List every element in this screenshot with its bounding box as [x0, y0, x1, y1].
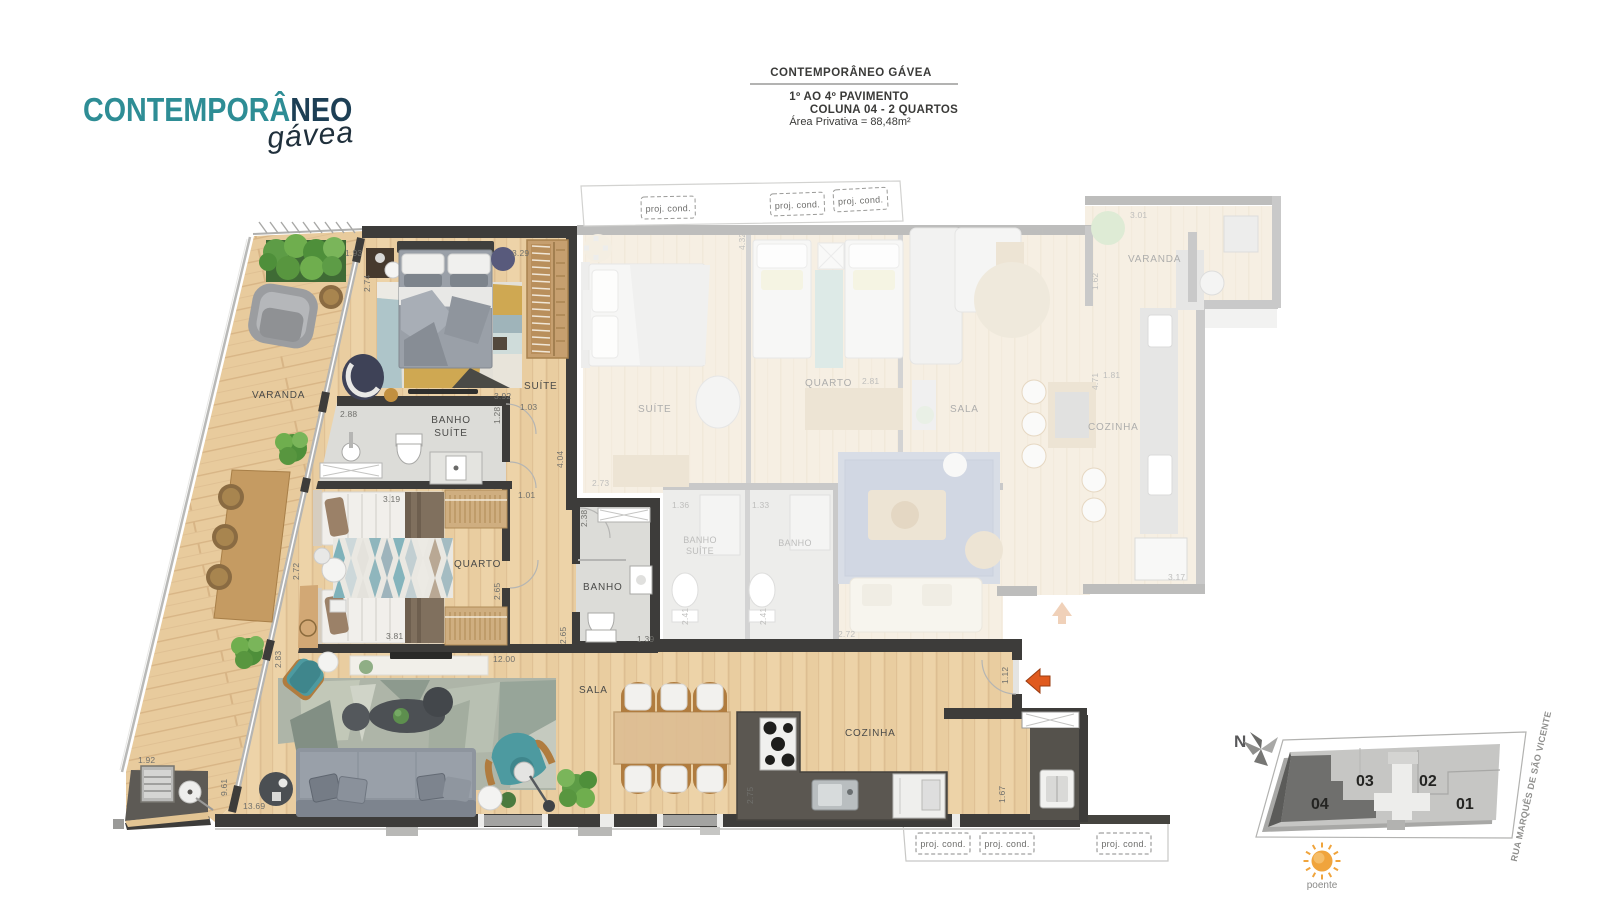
svg-text:SUÍTE: SUÍTE	[686, 546, 714, 556]
svg-text:03: 03	[1356, 773, 1374, 790]
svg-text:2.65: 2.65	[492, 583, 502, 600]
svg-text:gávea: gávea	[266, 116, 355, 155]
svg-text:4.04: 4.04	[555, 451, 565, 468]
svg-text:4.71: 4.71	[1090, 373, 1100, 390]
svg-text:BANHO: BANHO	[583, 582, 623, 593]
svg-text:1.33: 1.33	[752, 500, 769, 510]
svg-text:1.12: 1.12	[1000, 667, 1010, 684]
svg-text:3.29: 3.29	[512, 248, 529, 258]
svg-text:2.74: 2.74	[362, 275, 372, 292]
svg-text:3.19: 3.19	[383, 494, 400, 504]
svg-text:12.00: 12.00	[493, 654, 515, 664]
svg-text:proj. cond.: proj. cond.	[984, 839, 1029, 849]
svg-text:Área Privativa = 88,48m²: Área Privativa = 88,48m²	[789, 115, 911, 128]
svg-text:1.28: 1.28	[492, 407, 502, 424]
svg-text:BANHO: BANHO	[683, 535, 717, 545]
svg-text:VARANDA: VARANDA	[1128, 254, 1181, 265]
svg-text:2.38: 2.38	[579, 510, 589, 527]
svg-text:1.67: 1.67	[997, 786, 1007, 803]
svg-text:VARANDA: VARANDA	[252, 390, 305, 401]
svg-text:BANHO: BANHO	[431, 415, 471, 426]
svg-text:2.41: 2.41	[680, 608, 690, 625]
svg-text:COZINHA: COZINHA	[1088, 422, 1139, 433]
svg-text:SUÍTE: SUÍTE	[434, 426, 467, 439]
svg-text:1.92: 1.92	[138, 755, 155, 765]
svg-text:2.72: 2.72	[291, 563, 301, 580]
svg-text:BANHO: BANHO	[778, 538, 812, 548]
svg-text:proj. cond.: proj. cond.	[920, 839, 965, 849]
svg-text:2.83: 2.83	[273, 651, 283, 668]
svg-text:2.41: 2.41	[758, 608, 768, 625]
svg-text:1.81: 1.81	[1103, 370, 1120, 380]
svg-text:SUÍTE: SUÍTE	[524, 379, 557, 392]
svg-text:2.72: 2.72	[838, 629, 855, 639]
svg-text:3.92: 3.92	[494, 391, 511, 401]
svg-text:01: 01	[1456, 796, 1474, 813]
svg-text:2.73: 2.73	[592, 478, 609, 488]
svg-text:9.61: 9.61	[219, 779, 229, 796]
svg-text:proj. cond.: proj. cond.	[645, 203, 690, 214]
svg-text:QUARTO: QUARTO	[805, 378, 852, 389]
svg-text:04: 04	[1311, 796, 1329, 813]
svg-text:proj. cond.: proj. cond.	[1101, 839, 1146, 849]
svg-text:2.91: 2.91	[1028, 226, 1045, 236]
svg-text:3.17: 3.17	[1168, 572, 1185, 582]
svg-text:1.93: 1.93	[345, 248, 362, 258]
svg-text:CONTEMPORÂNEO GÁVEA: CONTEMPORÂNEO GÁVEA	[770, 66, 932, 79]
svg-text:2.88: 2.88	[340, 409, 357, 419]
svg-text:3.01: 3.01	[1130, 210, 1147, 220]
svg-text:2.75: 2.75	[745, 787, 755, 804]
svg-text:poente: poente	[1307, 880, 1338, 891]
svg-text:SALA: SALA	[950, 404, 979, 415]
svg-text:proj. cond.: proj. cond.	[775, 199, 821, 211]
svg-text:N: N	[1234, 732, 1246, 751]
svg-text:QUARTO: QUARTO	[454, 559, 501, 570]
svg-text:SUÍTE: SUÍTE	[638, 402, 671, 415]
svg-text:2.81: 2.81	[862, 376, 879, 386]
svg-text:1.01: 1.01	[518, 490, 535, 500]
svg-text:4.32: 4.32	[737, 233, 747, 250]
svg-text:COLUNA 04 - 2 QUARTOS: COLUNA 04 - 2 QUARTOS	[810, 104, 958, 116]
svg-text:1.62: 1.62	[1090, 273, 1100, 290]
svg-text:1.03: 1.03	[520, 402, 537, 412]
svg-text:3.81: 3.81	[386, 631, 403, 641]
svg-text:2.65: 2.65	[558, 627, 568, 644]
svg-text:1.39: 1.39	[637, 634, 654, 644]
svg-text:1.36: 1.36	[672, 500, 689, 510]
svg-text:COZINHA: COZINHA	[845, 728, 896, 739]
svg-text:02: 02	[1419, 773, 1437, 790]
svg-text:13.69: 13.69	[243, 801, 265, 811]
svg-text:1º AO 4º PAVIMENTO: 1º AO 4º PAVIMENTO	[789, 91, 908, 103]
svg-text:SALA: SALA	[579, 685, 608, 696]
